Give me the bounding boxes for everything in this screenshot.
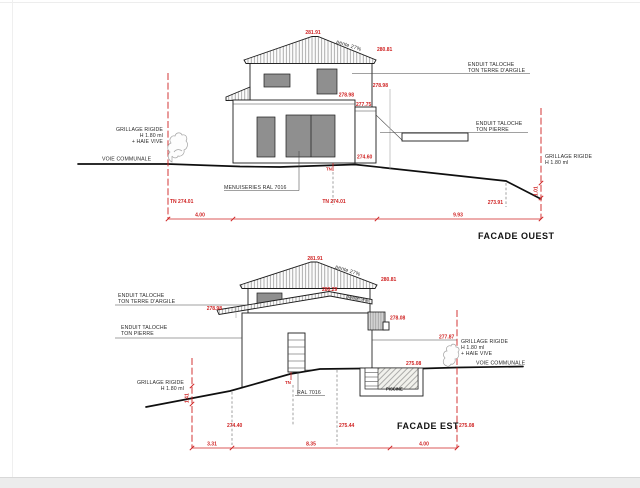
ouest-hedge-sketch <box>168 133 188 162</box>
est-fence-right-note: + HAIE VIVE <box>461 351 493 357</box>
page-left-edge <box>12 0 13 477</box>
ouest-lower-window-left <box>257 117 275 157</box>
ouest-garden-wall <box>402 133 468 141</box>
ouest-tn-left-level: TN 274.01 <box>170 199 194 205</box>
est-ground-left-level: 274.40 <box>227 423 243 429</box>
est-dim-mid: 8.35 <box>306 442 316 448</box>
pool-label: PISCINE <box>386 387 403 392</box>
ouest-upper-door-window <box>317 69 337 94</box>
ouest-lower-window-wide <box>286 115 335 157</box>
est-parapet-hatched <box>368 312 385 330</box>
est-terrain-line-right <box>423 367 523 369</box>
facade-est: PISCINE 281.91 280.81 280.29 278.98 278.… <box>115 256 545 450</box>
page-top-edge <box>0 2 640 3</box>
ouest-render-stone-note: TON PIERRE <box>476 127 509 133</box>
est-eave-level: 280.81 <box>381 277 397 283</box>
window-bottom-bar <box>0 477 640 488</box>
ouest-render-clay-note: TON TERRE D'ARGILE <box>468 68 526 74</box>
est-dim-right: 4.00 <box>419 442 429 448</box>
est-parapet-step <box>383 322 389 330</box>
ouest-tn-mid-tag: TN <box>326 167 332 172</box>
est-mid-level: 280.29 <box>322 287 338 293</box>
est-ground-right-level: 275.08 <box>459 423 475 429</box>
drawing-canvas: 281.91 280.81 278.98 278.98 277.75 274.6… <box>0 0 640 488</box>
est-joinery-note: RAL 7016 <box>297 390 321 396</box>
ouest-fence-height-dim: 1.01 <box>534 186 540 196</box>
ouest-dim-left: 4.00 <box>195 213 205 219</box>
est-title: FACADE EST <box>397 421 459 431</box>
ouest-title: FACADE OUEST <box>478 231 555 241</box>
ouest-tn-mid-level: TN 274.01 <box>322 199 346 205</box>
ouest-fence-right-note: H 1.80 ml <box>545 160 568 166</box>
est-ladder-window <box>288 333 305 372</box>
ouest-annex-level: 277.75 <box>356 102 372 108</box>
ouest-eave-level: 280.81 <box>377 47 393 53</box>
ouest-road-label: VOIE COMMUNALE <box>102 157 152 163</box>
est-dim-left: 3.31 <box>207 442 217 448</box>
ouest-floor-level-wall: 278.98 <box>339 93 355 99</box>
est-eave-left-level: 278.98 <box>207 306 223 312</box>
est-terrace-level: 277.87 <box>439 335 455 341</box>
ouest-ridge-level: 281.91 <box>305 30 321 36</box>
ouest-joinery-note: MENUISERIES RAL 7016 <box>224 185 286 191</box>
est-road-label: VOIE COMMUNALE <box>476 361 526 367</box>
est-render-stone-note: TON PIERRE <box>121 331 154 337</box>
ouest-annex-slope-line <box>376 115 402 140</box>
ouest-fence-left-note: + HAIE VIVE <box>132 139 164 145</box>
ouest-dim-right: 9.93 <box>453 213 463 219</box>
est-ground-mid-level: 275.44 <box>339 423 355 429</box>
facade-ouest: 281.91 280.81 278.98 278.98 277.75 274.6… <box>78 30 592 241</box>
ouest-upper-window <box>264 74 290 87</box>
ouest-terrain-right-level: 273.91 <box>488 200 504 206</box>
ouest-floor-level-right: 278.98 <box>373 83 389 89</box>
est-fence-height-dim: 1.41 <box>185 393 191 403</box>
est-fence-left-note: H 1.80 ml <box>161 386 184 392</box>
est-tn-tag: TN <box>285 380 291 385</box>
ouest-left-annex-roof <box>226 87 250 101</box>
ouest-ground-level: 274.60 <box>357 155 373 161</box>
est-wall-right-level: 278.08 <box>390 316 406 322</box>
est-render-clay-note: TON TERRE D'ARGILE <box>118 299 176 305</box>
est-pool-deck-level: 275.08 <box>406 361 422 367</box>
ouest-ground-mask <box>78 165 552 214</box>
elevation-drawing: 281.91 280.81 278.98 278.98 277.75 274.6… <box>0 0 640 488</box>
est-ridge-level: 281.91 <box>307 256 323 262</box>
